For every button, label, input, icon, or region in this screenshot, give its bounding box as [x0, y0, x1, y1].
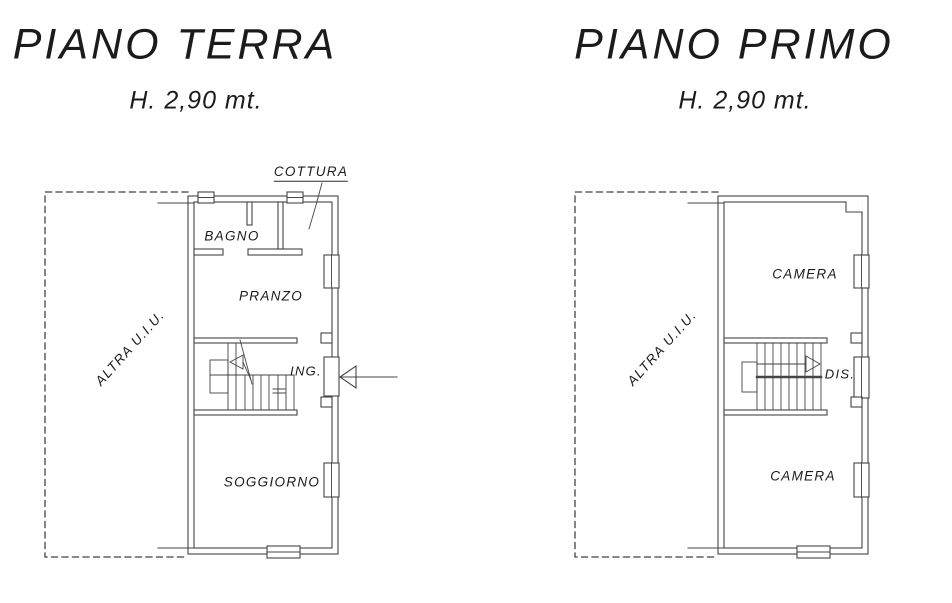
floor-title-primo: PIANO PRIMO [574, 24, 894, 67]
primo-staircase [742, 343, 821, 410]
entrance-arrow-icon [340, 366, 397, 388]
entrance-door [324, 357, 339, 396]
terra-wall-stubs [158, 203, 194, 548]
floor-height-terra: H. 2,90 mt. [129, 89, 262, 114]
floor-plan-sheet: PIANO TERRA H. 2,90 mt. COTTURA BAGNO PR… [0, 0, 952, 603]
floor-title-terra: PIANO TERRA [13, 24, 338, 67]
primo-openings [797, 255, 869, 558]
room-label-cottura: COTTURA [274, 165, 348, 182]
wall-jamb [851, 333, 862, 343]
room-label-pranzo: PRANZO [239, 289, 303, 303]
primo-wall-stubs [688, 203, 724, 548]
room-label-bagno: BAGNO [204, 229, 259, 243]
stair-direction-arrow [230, 355, 243, 369]
wall-jamb [851, 397, 862, 407]
terra-adjacent-unit-boundary [45, 192, 188, 557]
room-label-soggiorno: SOGGIORNO [224, 475, 320, 489]
room-label-camera-sud: CAMERA [770, 469, 836, 483]
cottura-leader-line [309, 183, 322, 229]
room-label-camera-nord: CAMERA [772, 267, 838, 281]
room-label-ingresso: ING. [290, 365, 322, 378]
terra-staircase [210, 340, 294, 410]
wall-jamb [321, 397, 332, 407]
corner-notch-mask [846, 201, 863, 213]
floor-height-primo: H. 2,90 mt. [678, 89, 811, 114]
wall-jamb [321, 333, 332, 343]
room-label-disimpegno: DIS. [825, 368, 855, 381]
